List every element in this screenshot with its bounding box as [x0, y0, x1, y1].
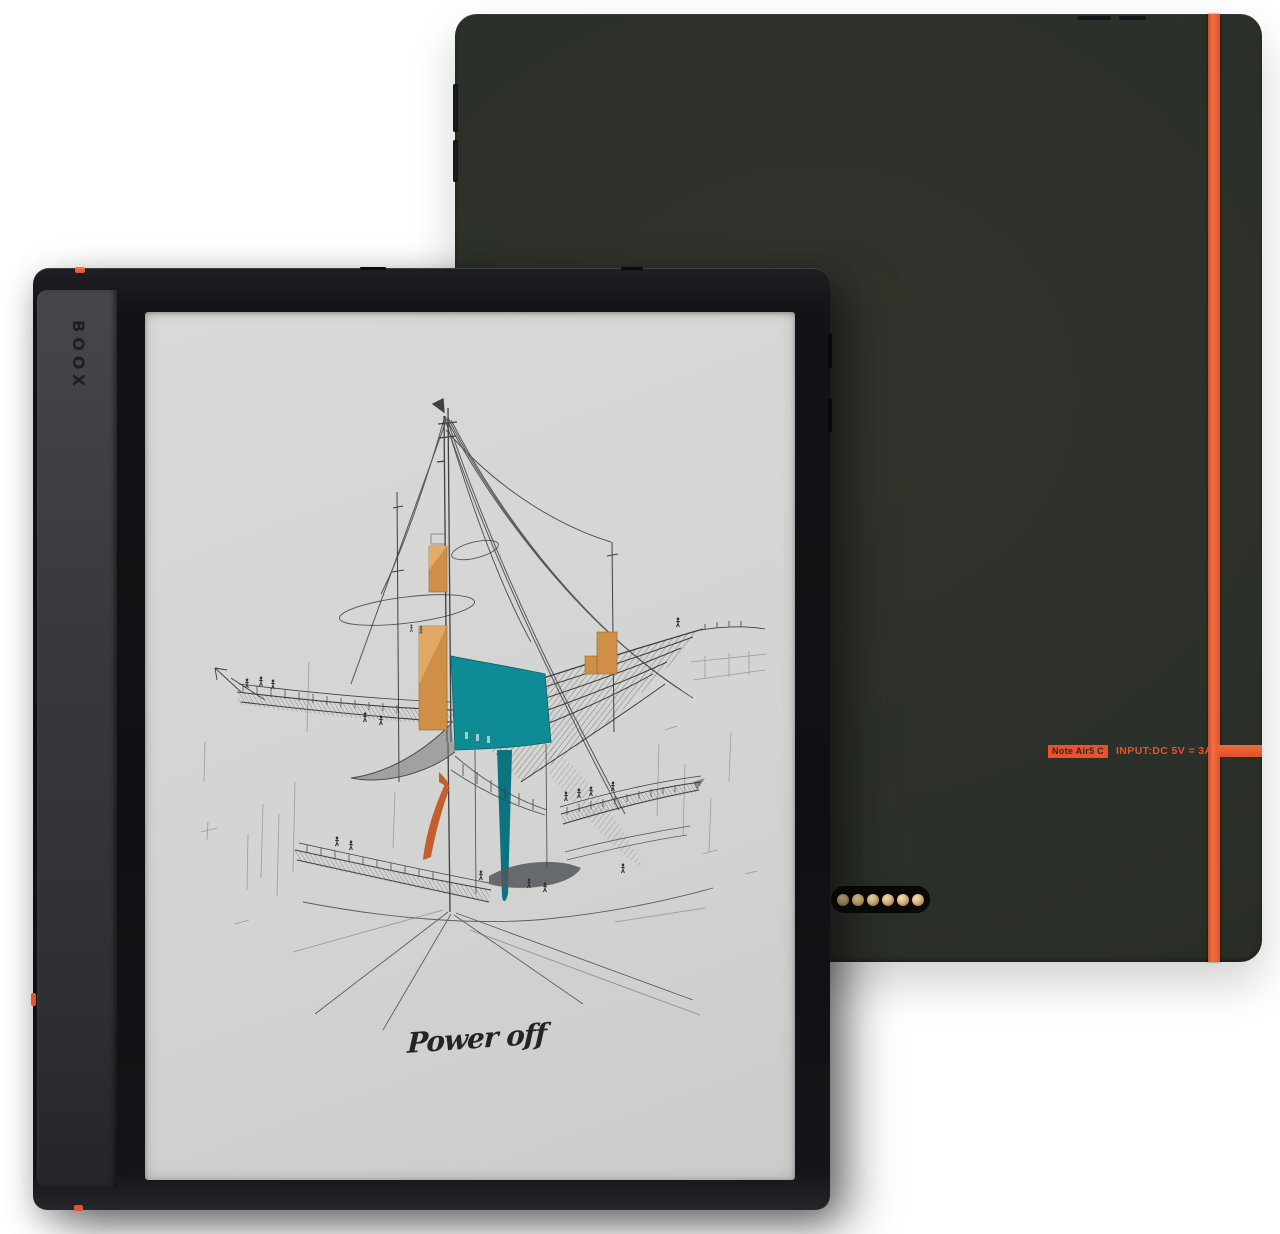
- side-button: [828, 333, 832, 368]
- speaker-slot-icon: [1077, 16, 1111, 20]
- orange-stripe-vertical: [1208, 14, 1220, 962]
- orange-stripe-horizontal: [1218, 745, 1262, 757]
- pogo-pin: [837, 894, 849, 906]
- pogo-pin: [852, 894, 864, 906]
- pogo-pin: [912, 894, 924, 906]
- top-edge-seam: [360, 267, 386, 270]
- pogo-pin: [882, 894, 894, 906]
- model-badge: Note Air5 C: [1048, 745, 1108, 758]
- back-edge-button: [453, 84, 458, 132]
- boox-logo: BOOX: [66, 320, 88, 391]
- eink-screen: Power off: [145, 312, 795, 1180]
- back-label-row: Note Air5 C INPUT:DC 5V = 3A: [1048, 744, 1213, 758]
- input-rating-label: INPUT:DC 5V = 3A: [1116, 745, 1213, 757]
- top-edge-seam: [621, 267, 643, 270]
- side-button: [828, 398, 832, 432]
- pogo-pin: [867, 894, 879, 906]
- pogo-pin: [897, 894, 909, 906]
- product-photo: Note Air5 C INPUT:DC 5V = 3A BOOX: [0, 0, 1280, 1234]
- orange-bottom-accent: [74, 1205, 83, 1211]
- speaker-slot-icon: [1119, 16, 1146, 20]
- front-device: BOOX: [33, 268, 830, 1210]
- back-edge-button: [453, 140, 458, 182]
- orange-power-button-accent: [31, 993, 36, 1006]
- orange-top-accent: [75, 267, 85, 273]
- left-spine-bezel: BOOX: [37, 290, 117, 1188]
- pogo-pins: [831, 886, 930, 913]
